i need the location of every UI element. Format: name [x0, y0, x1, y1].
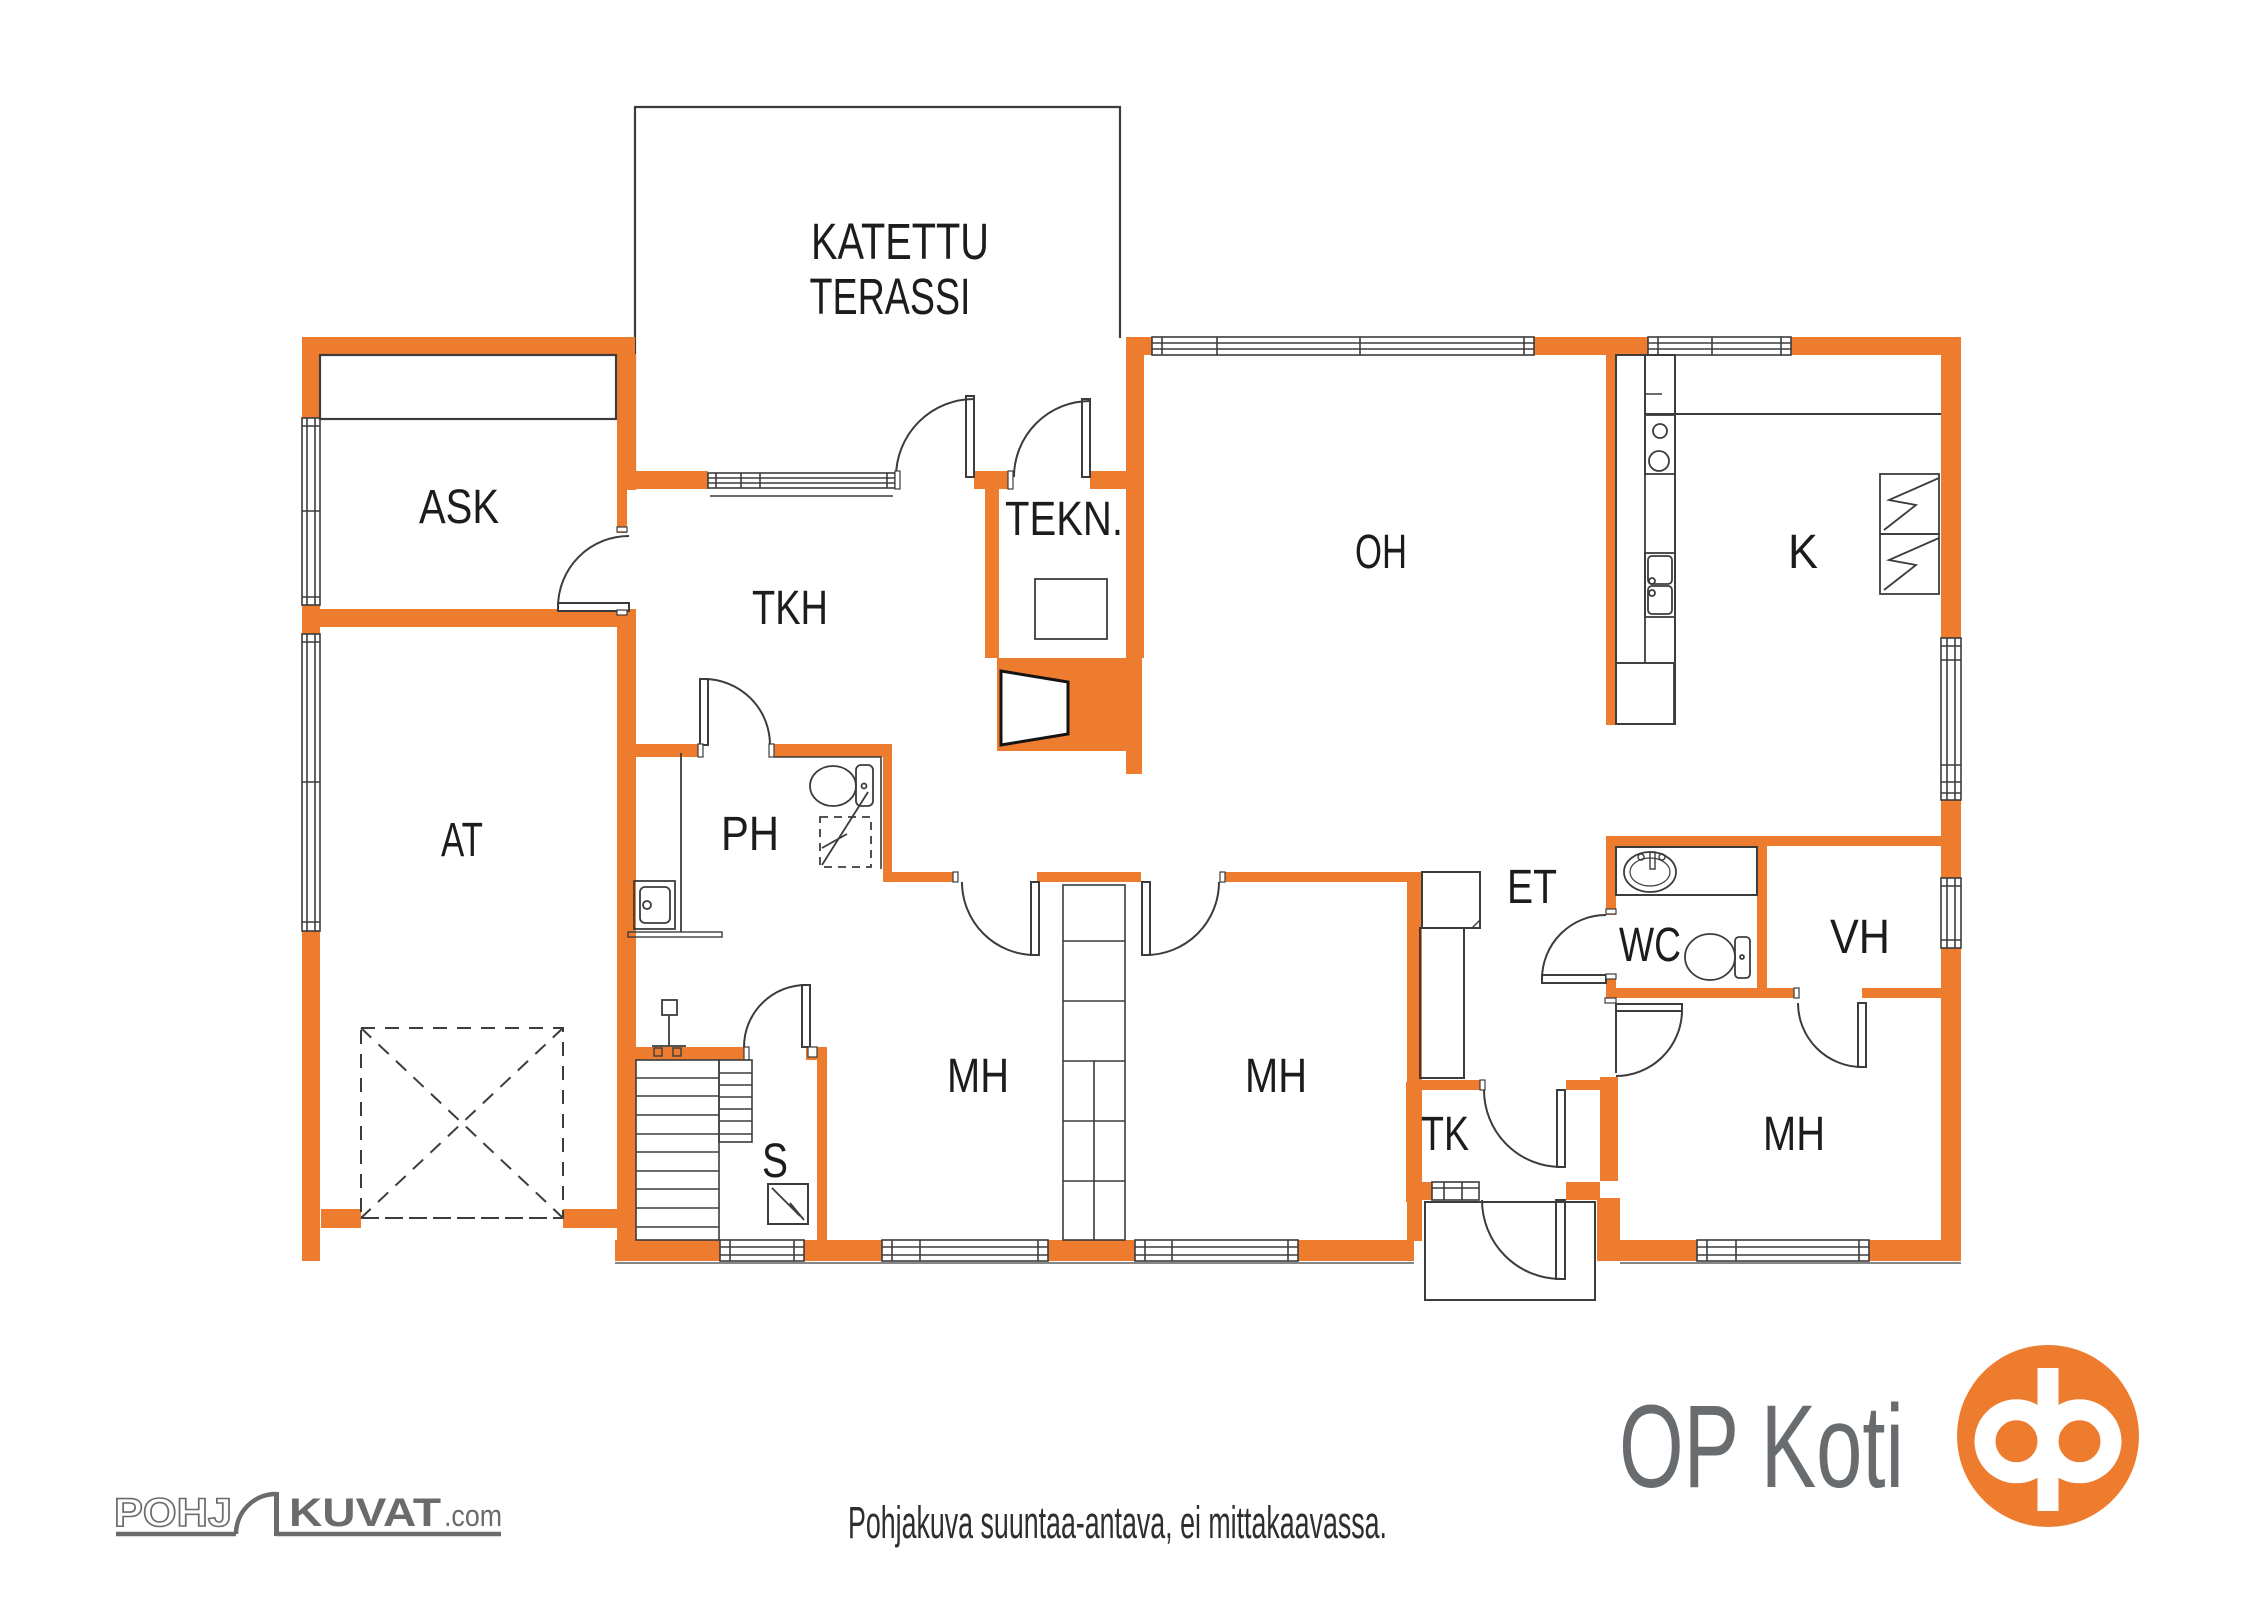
- svg-text:MH: MH: [1245, 1050, 1307, 1103]
- svg-text:VH: VH: [1830, 911, 1890, 964]
- svg-text:WC: WC: [1619, 919, 1681, 972]
- svg-text:KATETTU: KATETTU: [811, 213, 989, 270]
- svg-text:MH: MH: [1763, 1108, 1825, 1161]
- svg-text:TEKN.: TEKN.: [1005, 493, 1123, 546]
- svg-text:ET: ET: [1507, 861, 1557, 914]
- svg-text:MH: MH: [947, 1050, 1009, 1103]
- svg-text:KUVAT: KUVAT: [289, 1491, 441, 1535]
- svg-text:.com: .com: [444, 1498, 502, 1533]
- svg-text:TK: TK: [1421, 1108, 1469, 1161]
- svg-text:POHJ: POHJ: [114, 1491, 232, 1535]
- svg-text:TKH: TKH: [752, 582, 828, 635]
- svg-text:S: S: [762, 1135, 788, 1188]
- svg-text:PH: PH: [721, 808, 779, 861]
- svg-text:ASK: ASK: [419, 481, 499, 534]
- svg-text:OP Koti: OP Koti: [1619, 1381, 1904, 1513]
- svg-text:AT: AT: [441, 814, 483, 867]
- svg-text:TERASSI: TERASSI: [810, 268, 971, 325]
- svg-text:OH: OH: [1355, 526, 1407, 579]
- svg-text:Pohjakuva suuntaa-antava, ei m: Pohjakuva suuntaa-antava, ei mittakaavas…: [848, 1497, 1387, 1548]
- svg-text:K: K: [1788, 526, 1818, 579]
